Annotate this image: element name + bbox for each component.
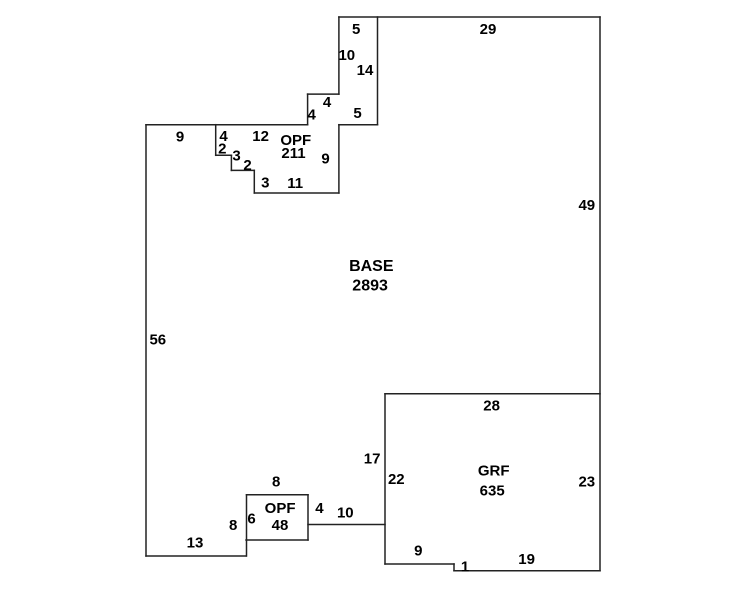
- svg-text:12: 12: [252, 128, 269, 145]
- svg-text:11: 11: [287, 175, 303, 192]
- svg-text:3: 3: [232, 148, 240, 165]
- svg-text:4: 4: [323, 94, 332, 111]
- svg-text:OPF: OPF: [265, 500, 296, 517]
- svg-text:23: 23: [578, 474, 595, 491]
- svg-text:9: 9: [414, 542, 422, 559]
- svg-text:5: 5: [353, 105, 361, 122]
- svg-text:2: 2: [218, 140, 226, 157]
- svg-text:635: 635: [480, 483, 505, 500]
- svg-text:14: 14: [357, 62, 374, 79]
- svg-text:2: 2: [243, 157, 251, 174]
- svg-text:22: 22: [388, 471, 405, 488]
- svg-text:9: 9: [176, 128, 184, 145]
- svg-text:29: 29: [480, 21, 497, 38]
- svg-text:3: 3: [261, 175, 269, 192]
- svg-text:6: 6: [247, 510, 255, 527]
- svg-text:4: 4: [308, 106, 317, 123]
- svg-text:19: 19: [518, 551, 535, 568]
- svg-text:GRF: GRF: [478, 462, 510, 479]
- svg-text:9: 9: [321, 151, 329, 168]
- svg-text:1: 1: [461, 559, 469, 576]
- svg-text:10: 10: [338, 47, 355, 64]
- svg-text:49: 49: [578, 197, 595, 214]
- svg-text:8: 8: [272, 474, 280, 491]
- svg-text:28: 28: [483, 398, 500, 415]
- svg-text:10: 10: [337, 505, 354, 522]
- svg-text:4: 4: [315, 500, 324, 517]
- svg-text:56: 56: [149, 332, 166, 349]
- svg-text:8: 8: [229, 517, 237, 534]
- svg-text:BASE: BASE: [349, 258, 394, 275]
- svg-text:13: 13: [187, 535, 204, 552]
- svg-text:17: 17: [364, 450, 381, 467]
- svg-text:5: 5: [352, 21, 360, 38]
- svg-text:211: 211: [281, 145, 305, 162]
- svg-text:48: 48: [272, 517, 289, 534]
- svg-text:2893: 2893: [352, 278, 388, 295]
